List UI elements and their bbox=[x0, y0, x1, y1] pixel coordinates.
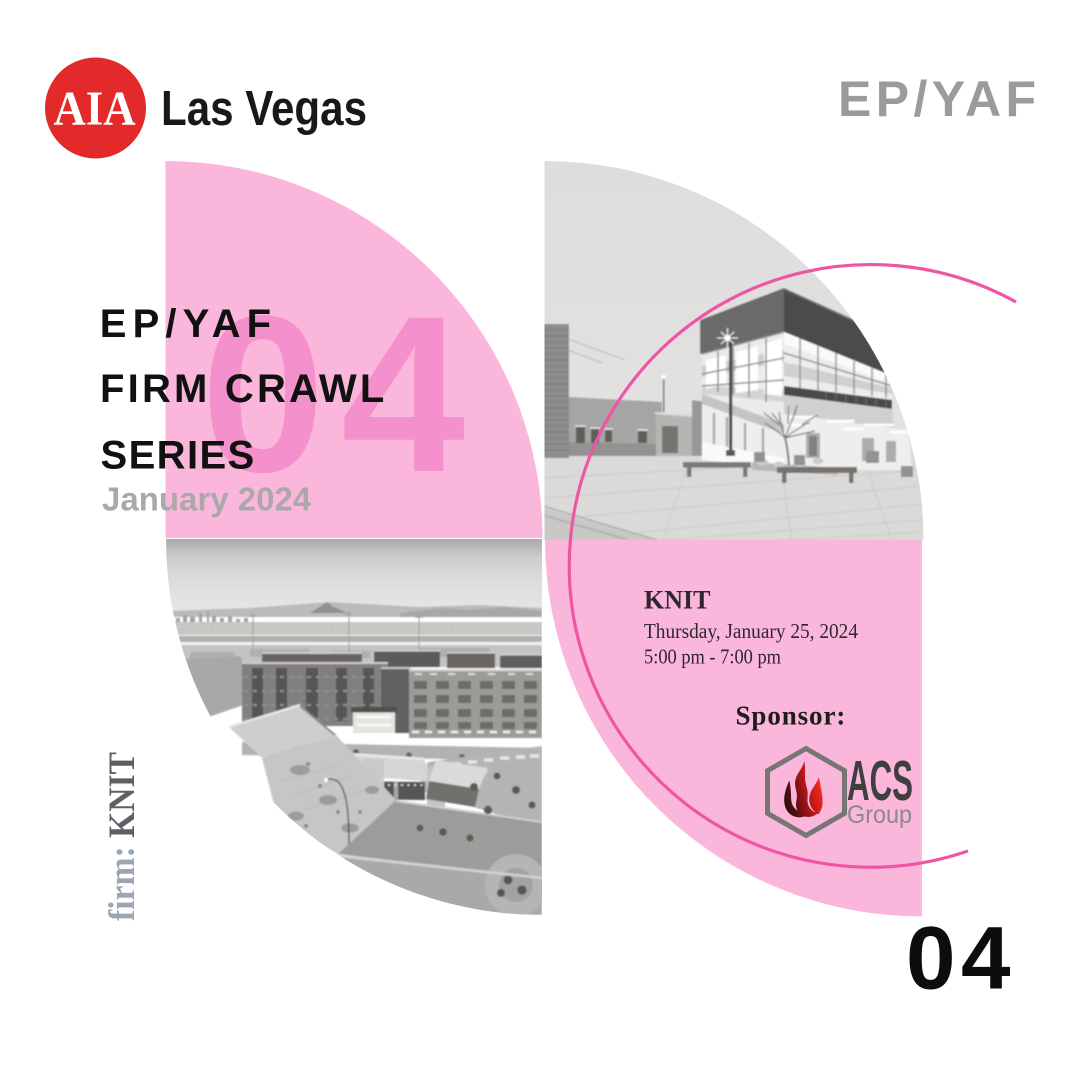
svg-text:04: 04 bbox=[906, 908, 1016, 1008]
svg-text:January 2024: January 2024 bbox=[102, 481, 312, 518]
svg-text:firm: KNIT: firm: KNIT bbox=[102, 752, 143, 921]
svg-text:AIA: AIA bbox=[54, 81, 137, 136]
svg-text:EP/YAF: EP/YAF bbox=[100, 302, 277, 346]
svg-text:Thursday, January 25, 2024: Thursday, January 25, 2024 bbox=[644, 619, 858, 643]
svg-text:Las Vegas: Las Vegas bbox=[161, 82, 367, 136]
svg-text:EP/YAF: EP/YAF bbox=[838, 71, 1036, 127]
svg-text:Sponsor:: Sponsor: bbox=[736, 701, 847, 731]
svg-text:SERIES: SERIES bbox=[101, 434, 256, 478]
svg-text:KNIT: KNIT bbox=[644, 586, 710, 615]
svg-text:FIRM CRAWL: FIRM CRAWL bbox=[100, 367, 388, 411]
svg-text:5:00 pm - 7:00 pm: 5:00 pm - 7:00 pm bbox=[644, 645, 781, 669]
svg-text:Group: Group bbox=[847, 801, 912, 829]
